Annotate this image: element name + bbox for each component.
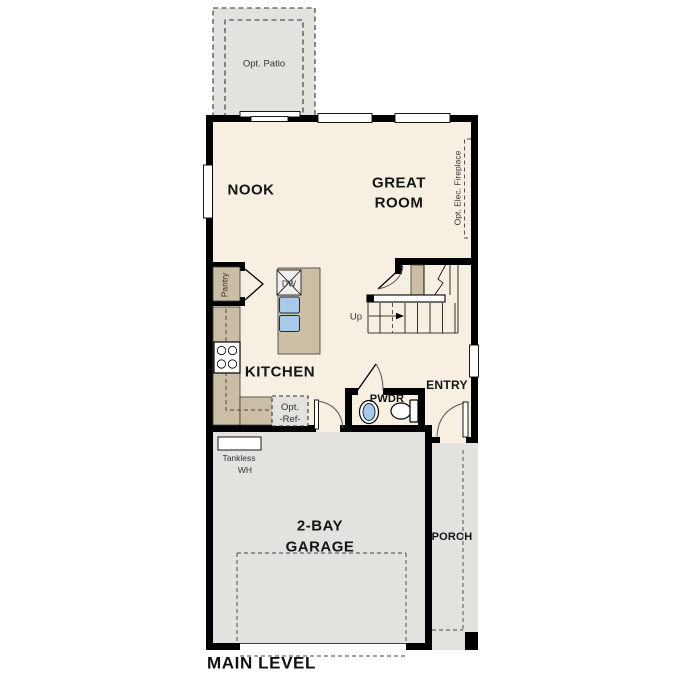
toilet-tank [410, 400, 418, 422]
stairs-up-label: Up [350, 312, 362, 323]
wall-pantry-jamb-top [240, 262, 245, 271]
toilet-bowl [391, 403, 411, 419]
floorplan-canvas: Opt. Patio Pantry [0, 0, 687, 687]
wall-entry-bottom-right [466, 437, 478, 443]
stove [214, 342, 240, 373]
sink-basin-bottom [280, 316, 300, 332]
porch-label: PORCH [432, 531, 473, 543]
plan-title: MAIN LEVEL [207, 654, 316, 673]
nook-window [204, 165, 213, 218]
opt-ref-label-line2: -Ref- [279, 414, 300, 425]
garage-door-opening [240, 643, 406, 651]
powder-label: PWDR [370, 393, 404, 405]
interior-floor [213, 118, 471, 443]
wall-bottom-left [206, 643, 240, 650]
porch-floor [432, 443, 478, 650]
patio-slider-panel-2 [251, 117, 288, 122]
wall-powder-top-left [345, 388, 358, 395]
greatroom-window-2 [395, 114, 450, 123]
tankless-water-heater [218, 437, 261, 450]
garage-label-line1: 2-BAY [297, 518, 343, 535]
wall-pantry-jamb-bottom [240, 297, 245, 306]
nook-label: NOOK [228, 182, 275, 199]
floorplan-drawing: Opt. Patio Pantry [0, 0, 687, 687]
front-door-leaf [463, 402, 468, 437]
entry-label: ENTRY [426, 378, 468, 392]
tankless-label-line2: WH [238, 465, 252, 475]
garage-label-line2: GARAGE [286, 539, 355, 556]
wall-garage-top-left [206, 425, 316, 432]
porch-post [465, 632, 478, 650]
sink-basin-top [280, 297, 300, 313]
garage-floor [213, 432, 425, 643]
kitchen-counter-bottom [240, 397, 273, 425]
wall-stairwell [395, 258, 478, 265]
wall-pantry-bottom [208, 301, 245, 306]
dishwasher-label: DW [282, 279, 296, 289]
garage-entry-door-leaf [315, 400, 319, 429]
wall-pantry-top [208, 262, 245, 267]
greatroom-window-1 [318, 114, 372, 123]
stair-handrail [367, 295, 445, 302]
wall-right [471, 115, 478, 443]
stair-newel-post [367, 295, 374, 302]
wall-entry-bottom-left [432, 437, 440, 443]
tankless-label-line1: Tankless [222, 453, 255, 463]
stair-wall-strip [411, 265, 424, 295]
patio-label: Opt. Patio [243, 59, 285, 70]
pantry-label: Pantry [220, 272, 230, 297]
greatroom-label-line2: ROOM [375, 195, 424, 212]
kitchen-label: KITCHEN [245, 364, 315, 381]
fireplace-label: Opt. Elec. Fireplace [453, 150, 463, 225]
opt-ref-label-line1: Opt. [281, 402, 299, 413]
powder-sink-basin [363, 404, 375, 421]
entry-window [470, 345, 479, 377]
greatroom-label-line1: GREAT [372, 175, 426, 192]
